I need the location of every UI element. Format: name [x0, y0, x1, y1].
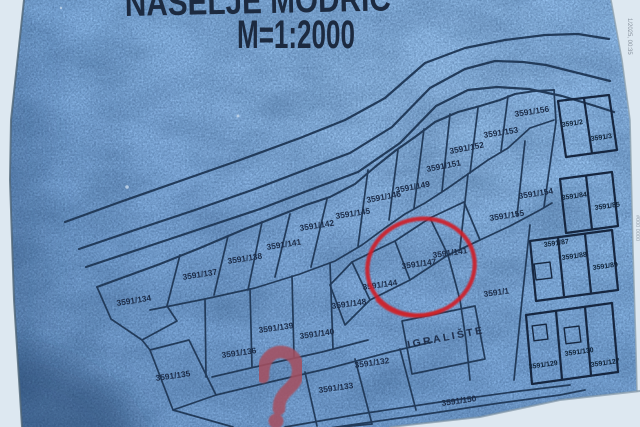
svg-text:M=1:2000: M=1:2000 — [237, 13, 355, 57]
svg-text:#000 0000: #000 0000 — [634, 215, 640, 241]
svg-text:1/2025, 00:35: 1/2025, 00:35 — [626, 18, 632, 55]
